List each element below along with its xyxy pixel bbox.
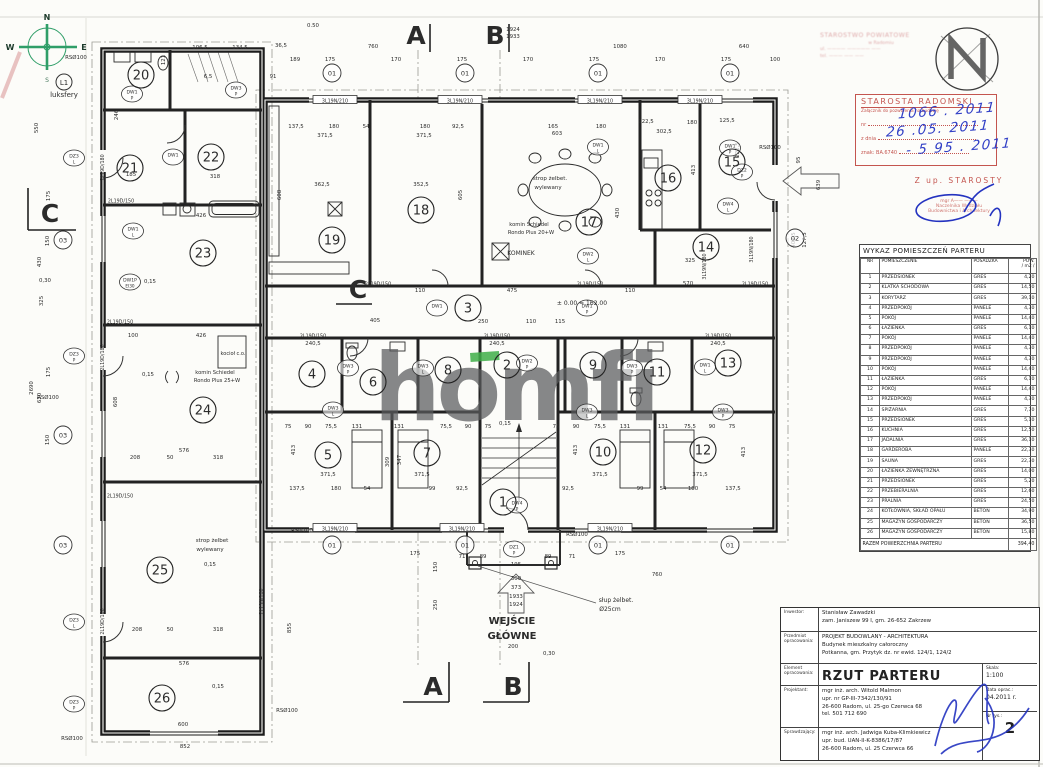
plan-annotation: kocioł c.o. bbox=[221, 351, 246, 357]
room-number: 3 bbox=[464, 302, 472, 317]
schedule-cell: PANELE bbox=[972, 386, 1009, 396]
schedule-row: 22PRZEBIERALNIAGRES12,60 bbox=[861, 487, 1037, 497]
schedule-row: 8PRZEDPOKÓJPANELE4,30 bbox=[861, 345, 1037, 355]
schedule-cell: 4,30 bbox=[1009, 304, 1037, 314]
plan-annotation: GŁÓWNE bbox=[487, 629, 536, 642]
schedule-cell: GRES bbox=[972, 457, 1009, 467]
dimension-label: 371,5 bbox=[320, 472, 335, 478]
schedule-cell: GRES bbox=[972, 324, 1009, 334]
dimension-label: 1933 bbox=[506, 34, 520, 40]
schedule-cell: GRES bbox=[972, 294, 1009, 304]
schedule-row: 12POKÓJPANELE14,40 bbox=[861, 386, 1037, 396]
dimension-label: 600 bbox=[178, 722, 189, 728]
dimension-label: 371,5 bbox=[592, 472, 607, 478]
schedule-cell: 36,10 bbox=[1009, 437, 1037, 447]
schedule-cell: GRES bbox=[972, 437, 1009, 447]
plan-annotation: ± 0.00 = 162.00 bbox=[557, 300, 607, 307]
schedule-cell: GARDEROBA bbox=[880, 447, 972, 457]
room-number: 19 bbox=[324, 234, 341, 249]
luksfery-tag: L1 bbox=[56, 74, 72, 90]
schedule-row: 20ŁAZIENKA ZEWNĘTRZNAGRES14,00 bbox=[861, 467, 1037, 477]
dimension-label: 175 bbox=[46, 367, 52, 377]
schedule-cell: GRES bbox=[972, 426, 1009, 436]
dimension-label: 137,5 bbox=[725, 486, 740, 492]
schedule-row: 14SPIŻARNIAGRES7,70 bbox=[861, 406, 1037, 416]
dimension-label: 640 bbox=[739, 44, 750, 50]
plan-annotation: Rondo Plus 25+W bbox=[194, 378, 240, 384]
schedule-cell: 19 bbox=[861, 457, 880, 467]
room-number: 12 bbox=[695, 444, 712, 459]
schedule-row: 17JADALNIAGRES36,10 bbox=[861, 437, 1037, 447]
schedule-cell: PRZEDSIONEK bbox=[880, 274, 972, 284]
dimension-label: 760 bbox=[368, 44, 379, 50]
dimension-label: 1080 bbox=[613, 44, 627, 50]
dimension-label: 75,5 bbox=[594, 424, 606, 430]
schedule-row: 26MAGAZYN GOSPODARCZYBETON15,80 bbox=[861, 528, 1037, 538]
schedule-cell: KLATKA SCHODOWA bbox=[880, 284, 972, 294]
room-number: 22 bbox=[203, 151, 220, 166]
dimension-label: 576 bbox=[179, 448, 190, 454]
compass-s: S bbox=[45, 77, 49, 84]
lintel-label: 3L19N/210 bbox=[322, 527, 348, 533]
dimension-label: 0,15 bbox=[142, 372, 154, 378]
scan-artifact bbox=[2, 52, 20, 98]
lintel-label: 2L19D/180 bbox=[100, 344, 106, 370]
dimension-label: 131 bbox=[352, 424, 362, 430]
room-number: 9 bbox=[589, 359, 597, 374]
plan-annotation: strop żelbet. bbox=[533, 176, 568, 182]
schedule-row: 5POKÓJPANELE14,40 bbox=[861, 314, 1037, 324]
schedule-cell: PANELE bbox=[972, 396, 1009, 406]
schedule-cell: 14,40 bbox=[1009, 386, 1037, 396]
room-schedule-table: WYKAZ POMIESZCZEŃ PARTERU NR POMIESZCZEN… bbox=[859, 244, 1031, 552]
dimension-label: 134,5 bbox=[232, 45, 247, 51]
dimension-label: 90 bbox=[465, 424, 472, 430]
room-schedule-header: NR POMIESZCZENIE POSADZKA POW. / m2 / bbox=[861, 259, 1037, 274]
dimension-label: 99 bbox=[429, 486, 436, 492]
schedule-cell: PANELE bbox=[972, 304, 1009, 314]
schedule-cell: 1 bbox=[861, 274, 880, 284]
dimension-label: 175 bbox=[457, 57, 467, 63]
schedule-cell: 8 bbox=[861, 345, 880, 355]
plan-annotation: KOMINEK bbox=[507, 250, 536, 257]
dimension-label: 100 bbox=[770, 57, 781, 63]
schedule-cell: PANELE bbox=[972, 365, 1009, 375]
schedule-cell: 20 bbox=[861, 467, 880, 477]
architect-chamber-logo bbox=[936, 28, 998, 90]
schedule-cell: 22,30 bbox=[1009, 457, 1037, 467]
opening-marker-label: 01 bbox=[328, 69, 336, 77]
schedule-cell: PRZEDPOKÓJ bbox=[880, 396, 972, 406]
dimension-label: 430 bbox=[37, 256, 43, 267]
schedule-cell: GRES bbox=[972, 284, 1009, 294]
schedule-row: 7POKÓJPANELE14,40 bbox=[861, 335, 1037, 345]
schedule-row: 13PRZEDPOKÓJPANELE4,30 bbox=[861, 396, 1037, 406]
section-marker: C bbox=[41, 199, 59, 228]
schedule-row: 11ŁAZIENKAGRES6,10 bbox=[861, 375, 1037, 385]
schedule-row: 19SAUNAGRES22,30 bbox=[861, 457, 1037, 467]
dimension-label: 180 bbox=[331, 486, 342, 492]
przedmiot-label: Przedmiot opracowania: bbox=[781, 632, 819, 664]
plan-annotation: wylewany bbox=[196, 547, 224, 553]
schedule-cell: 5 bbox=[861, 314, 880, 324]
dimension-label: 75 bbox=[729, 424, 736, 430]
room-number: 10 bbox=[595, 446, 612, 461]
dimension-label: 170 bbox=[523, 57, 534, 63]
dimension-label: 115 bbox=[555, 319, 565, 325]
room-number: 23 bbox=[195, 247, 212, 262]
inwestor-label: Inwestor: bbox=[781, 608, 819, 632]
rs-pipe-label: RSØ100 bbox=[566, 531, 588, 538]
schedule-total-row: RAZEM POWIERZCHNIA PARTERU 394,40 bbox=[861, 538, 1037, 550]
scale-value: 1:100 bbox=[986, 672, 1034, 679]
dimension-label: 89 bbox=[480, 554, 487, 560]
dimension-label: 180 bbox=[420, 124, 431, 130]
schedule-row: 18GARDEROBAPANELE22,30 bbox=[861, 447, 1037, 457]
dimension-label: 576 bbox=[179, 661, 190, 667]
schedule-cell: 14,00 bbox=[1009, 467, 1037, 477]
schedule-cell: JADALNIA bbox=[880, 437, 972, 447]
dimension-label: 373 bbox=[511, 585, 521, 591]
sprawdzajacy-value: mgr inż. arch. Jadwiga Kuba-Klimkiewiczu… bbox=[819, 728, 983, 760]
schedule-cell: 15 bbox=[861, 416, 880, 426]
dimension-label: 175 bbox=[721, 57, 731, 63]
faint-office-stamp: STAROSTWO POWIATOWE w Radomiu ul. ———— —… bbox=[820, 32, 942, 59]
dimension-label: 99 bbox=[637, 486, 644, 492]
dimension-label: 430 bbox=[615, 207, 621, 218]
schedule-cell: GRES bbox=[972, 406, 1009, 416]
schedule-cell: GRES bbox=[972, 487, 1009, 497]
schedule-cell: 21 bbox=[861, 477, 880, 487]
schedule-cell: PRZEBIERALNIA bbox=[880, 487, 972, 497]
projektant-value: mgr inż. arch. Witold Malmonupr. nr GP-I… bbox=[819, 686, 983, 728]
dimension-label: 413 bbox=[573, 445, 579, 455]
approval-stamp: STAROSTA RADOMSKI Załącznik do pozwoleni… bbox=[855, 94, 997, 166]
dimension-label: 760 bbox=[652, 572, 663, 578]
schedule-row: 25MAGAZYN GOSPODARCZYBETON36,50 bbox=[861, 518, 1037, 528]
dimension-label: 90 bbox=[573, 424, 580, 430]
room-number: 13 bbox=[720, 357, 737, 372]
opening-marker-label: 01 bbox=[461, 69, 469, 77]
dimension-label: 175 bbox=[615, 551, 625, 557]
schedule-cell: PRALNIA bbox=[880, 498, 972, 508]
schedule-cell: SPIŻARNIA bbox=[880, 406, 972, 416]
col-nr: NR bbox=[861, 259, 880, 274]
dimension-label: 570 bbox=[683, 281, 694, 287]
dimension-label: 71 bbox=[569, 554, 576, 560]
dimension-label: 122,5 bbox=[638, 119, 653, 125]
compass-e: E bbox=[81, 43, 86, 52]
schedule-cell: PRZEDSIONEK bbox=[880, 477, 972, 487]
opening-marker-label: 03 bbox=[59, 236, 67, 244]
dimension-label: 550 bbox=[34, 122, 40, 133]
dimension-label: 90 bbox=[709, 424, 716, 430]
dimension-label: 170 bbox=[391, 57, 402, 63]
schedule-cell: ŁAZIENKA bbox=[880, 324, 972, 334]
schedule-row: 15PRZEDSIONEKGRES5,10 bbox=[861, 416, 1037, 426]
rs-pipe-label: RSØ100 bbox=[61, 735, 83, 742]
plan-annotation: luksfery bbox=[50, 91, 78, 99]
dimension-label: 639 bbox=[816, 179, 822, 190]
dimension-label: 240,5 bbox=[710, 341, 725, 347]
schedule-cell: BETON bbox=[972, 518, 1009, 528]
schedule-cell: SAUNA bbox=[880, 457, 972, 467]
schedule-cell: GRES bbox=[972, 375, 1009, 385]
schedule-cell: 7,70 bbox=[1009, 406, 1037, 416]
element-label: Element opracowania: bbox=[781, 664, 819, 686]
schedule-cell: 12,50 bbox=[1009, 426, 1037, 436]
door-tag-code: DW1 bbox=[167, 153, 178, 159]
dimension-label: 318 bbox=[210, 174, 221, 180]
dimension-label: 608 bbox=[113, 396, 119, 407]
schedule-row: 6ŁAZIENKAGRES6,10 bbox=[861, 324, 1037, 334]
door-tag-side: EI30 bbox=[125, 284, 135, 289]
schedule-cell: 17 bbox=[861, 437, 880, 447]
dimension-label: 309 bbox=[385, 456, 391, 467]
schedule-row: 3KORYTARZGRES39,10 bbox=[861, 294, 1037, 304]
room-number: 14 bbox=[698, 241, 715, 256]
dimension-label: 208 bbox=[132, 627, 143, 633]
schedule-cell: PANELE bbox=[972, 447, 1009, 457]
dimension-label: 852 bbox=[180, 744, 190, 750]
scale-cell: Skala: 1:100 bbox=[983, 664, 1037, 686]
lintel-label: 2L19D/150 bbox=[577, 282, 603, 288]
schedule-cell: 22,30 bbox=[1009, 447, 1037, 457]
opening-marker-label: 01 bbox=[726, 541, 734, 549]
dimension-label: 475 bbox=[507, 288, 517, 294]
dimension-label: 405 bbox=[370, 318, 380, 324]
lintel-label: 3L19N/210 bbox=[447, 99, 473, 105]
opening-marker-label: 03 bbox=[59, 431, 67, 439]
schedule-cell: 4,30 bbox=[1009, 345, 1037, 355]
schedule-cell: 5,20 bbox=[1009, 477, 1037, 487]
schedule-row: 23PRALNIAGRES24,50 bbox=[861, 498, 1037, 508]
schedule-cell: 23 bbox=[861, 498, 880, 508]
dimension-label: 362,5 bbox=[314, 182, 329, 188]
dimension-label: 195 bbox=[511, 562, 521, 568]
compass-w: W bbox=[6, 43, 15, 52]
room-number: 20 bbox=[133, 69, 150, 84]
schedule-cell: 2 bbox=[861, 284, 880, 294]
schedule-cell: GRES bbox=[972, 467, 1009, 477]
dimension-label: 426 bbox=[196, 213, 207, 219]
schedule-cell: PRZEDPOKÓJ bbox=[880, 355, 972, 365]
dimension-label: 605 bbox=[458, 190, 464, 200]
schedule-total-label: RAZEM POWIERZCHNIA PARTERU bbox=[861, 538, 1009, 550]
schedule-cell: 11 bbox=[861, 375, 880, 385]
dimension-label: 371,5 bbox=[317, 133, 332, 139]
dimension-label: 0,15 bbox=[212, 684, 224, 690]
schedule-cell: 4,20 bbox=[1009, 274, 1037, 284]
schedule-cell: GRES bbox=[972, 477, 1009, 487]
dimension-label: 347 bbox=[397, 455, 403, 465]
dimension-label: 125,5 bbox=[719, 118, 734, 124]
room-number: 15 bbox=[724, 156, 741, 171]
dimension-label: 121 bbox=[161, 55, 167, 65]
dimension-label: 180 bbox=[596, 124, 607, 130]
schedule-cell: 9 bbox=[861, 355, 880, 365]
dimension-label: 165 bbox=[548, 124, 558, 130]
section-marker: A bbox=[406, 21, 426, 50]
dimension-label: 54 bbox=[660, 486, 667, 492]
opening-marker-label: 01 bbox=[594, 541, 602, 549]
schedule-cell: PRZEDSIONEK bbox=[880, 416, 972, 426]
schedule-cell: MAGAZYN GOSPODARCZY bbox=[880, 528, 972, 538]
drawing-title: RZUT PARTERU bbox=[819, 664, 983, 686]
dimension-label: 106,5 bbox=[192, 45, 207, 51]
lintel-label: 2L19D/150 bbox=[107, 320, 133, 326]
schedule-cell: KOTŁOWNIA, SKŁAD OPAŁU bbox=[880, 508, 972, 518]
dimension-label: 100 bbox=[128, 333, 139, 339]
lintel-label: 3L19N/180 bbox=[702, 253, 708, 279]
dimension-label: 246 bbox=[114, 109, 120, 120]
room-number: 8 bbox=[444, 364, 452, 379]
dimension-label: 318 bbox=[213, 455, 224, 461]
schedule-cell: PRZEDPOKÓJ bbox=[880, 345, 972, 355]
dimension-label: 110 bbox=[415, 288, 426, 294]
dimension-label: 170 bbox=[655, 57, 666, 63]
col-name: POMIESZCZENIE bbox=[880, 259, 972, 274]
schedule-cell: 14,40 bbox=[1009, 335, 1037, 345]
schedule-cell: PANELE bbox=[972, 355, 1009, 365]
section-marker: B bbox=[503, 672, 522, 701]
schedule-row: 9PRZEDPOKÓJPANELE4,30 bbox=[861, 355, 1037, 365]
schedule-cell: ŁAZIENKA ZEWNĘTRZNA bbox=[880, 467, 972, 477]
schedule-cell: KUCHNIA bbox=[880, 426, 972, 436]
lintel-label: 2L19D/150 bbox=[107, 494, 133, 500]
schedule-cell: 26 bbox=[861, 528, 880, 538]
schedule-cell: 14 bbox=[861, 406, 880, 416]
dimension-label: 855 bbox=[287, 623, 293, 633]
dimension-label: 131 bbox=[394, 424, 404, 430]
lintel-label: 2L19D/150 bbox=[108, 199, 134, 205]
dimension-label: 175 bbox=[325, 57, 335, 63]
dimension-label: 208 bbox=[130, 455, 141, 461]
authority-signature-stamp: Z up. STAROSTY mgr A—— ——— Naczelnika Wy… bbox=[884, 176, 1034, 214]
lintel-label: 2L19D/150 bbox=[705, 334, 731, 340]
lintel-label: 3L19N/210 bbox=[449, 527, 475, 533]
rs-pipe-label: RSØ100 bbox=[276, 707, 298, 714]
opening-marker-label: 01 bbox=[328, 541, 336, 549]
room-number: 17 bbox=[581, 216, 598, 231]
schedule-cell: 36,50 bbox=[1009, 518, 1037, 528]
dimension-label: 189 bbox=[290, 57, 301, 63]
schedule-cell: 10 bbox=[861, 365, 880, 375]
room-number: 5 bbox=[324, 449, 332, 464]
schedule-cell: 24 bbox=[861, 508, 880, 518]
room-number: 16 bbox=[660, 172, 677, 187]
dimension-label: 54 bbox=[363, 124, 370, 130]
dimension-label: 300 bbox=[511, 576, 522, 582]
plan-annotation: słup żelbet. bbox=[599, 597, 634, 604]
schedule-cell: 4 bbox=[861, 304, 880, 314]
schedule-row: 4PRZEDPOKÓJPANELE4,30 bbox=[861, 304, 1037, 314]
dimension-label: 75,5 bbox=[325, 424, 337, 430]
schedule-cell: POKÓJ bbox=[880, 386, 972, 396]
section-marker: C bbox=[349, 275, 367, 304]
schedule-cell: 18 bbox=[861, 447, 880, 457]
dimension-label: 6,5 bbox=[204, 74, 213, 80]
room-number: 18 bbox=[413, 204, 430, 219]
dimension-label: 0,30 bbox=[39, 278, 52, 284]
dimension-label: 1933 bbox=[509, 594, 523, 600]
schedule-cell: 14,40 bbox=[1009, 365, 1037, 375]
room-number: 21 bbox=[122, 162, 139, 177]
schedule-cell: 6,10 bbox=[1009, 375, 1037, 385]
date-value: 04.2011 r. bbox=[986, 694, 1034, 701]
col-area: POW. / m2 / bbox=[1009, 259, 1037, 274]
dimension-label: 75 bbox=[285, 424, 292, 430]
schedule-row: 16KUCHNIAGRES12,50 bbox=[861, 426, 1037, 436]
room-number: 7 bbox=[423, 447, 431, 462]
lintel-label: 2L19N/180 bbox=[259, 588, 265, 614]
dimension-label: 0.50 bbox=[307, 23, 320, 29]
door-tag-code: DW1 bbox=[431, 304, 442, 310]
dimension-label: 50 bbox=[167, 627, 174, 633]
opening-marker-label: 02 bbox=[791, 234, 799, 242]
dimension-label: 92,5 bbox=[456, 486, 468, 492]
dimension-label: 371,5 bbox=[692, 472, 707, 478]
schedule-cell: 14,40 bbox=[1009, 314, 1037, 324]
dimension-label: 50 bbox=[167, 455, 174, 461]
schedule-cell: GRES bbox=[972, 498, 1009, 508]
schedule-cell: PRZEDPOKÓJ bbox=[880, 304, 972, 314]
title-block: Inwestor: Stanisław Zawadzkizam. Janisze… bbox=[780, 607, 1040, 761]
rs-pipe-label: RSØ100 bbox=[759, 144, 781, 151]
dimension-label: 71 bbox=[459, 554, 466, 560]
plan-annotation: WEJŚCIE bbox=[489, 614, 536, 627]
lintel-label: 2L19D/150 bbox=[484, 334, 510, 340]
dimension-label: 0,30 bbox=[543, 651, 556, 657]
schedule-cell: 16 bbox=[861, 426, 880, 436]
dimension-label: 0,15 bbox=[204, 562, 216, 568]
dimension-label: 302,5 bbox=[656, 129, 671, 135]
schedule-cell: 15,80 bbox=[1009, 528, 1037, 538]
plan-annotation: strop żelbet bbox=[196, 538, 229, 544]
dimension-label: 89 bbox=[545, 554, 552, 560]
drawing-number: 2 bbox=[986, 719, 1034, 737]
schedule-cell: 34,90 bbox=[1009, 508, 1037, 518]
schedule-cell: BETON bbox=[972, 508, 1009, 518]
dimension-label: 318 bbox=[213, 627, 224, 633]
dimension-label: 110 bbox=[526, 319, 537, 325]
schedule-cell: MAGAZYN GOSPODARCZY bbox=[880, 518, 972, 528]
dimension-label: 75 bbox=[485, 424, 492, 430]
lintel-label: 2L19D/150 bbox=[300, 334, 326, 340]
dimension-label: 90 bbox=[305, 424, 312, 430]
dimension-label: 325 bbox=[685, 258, 695, 264]
dimension-label: 180 bbox=[688, 486, 699, 492]
przedmiot-value: PROJEKT BUDOWLANY - ARCHITEKTURABudynek … bbox=[819, 632, 1037, 664]
compass-rose: N W E S bbox=[6, 13, 87, 84]
dimension-label: 240,5 bbox=[305, 341, 320, 347]
schedule-cell: 3 bbox=[861, 294, 880, 304]
schedule-row: 24KOTŁOWNIA, SKŁAD OPAŁUBETON34,90 bbox=[861, 508, 1037, 518]
dimension-label: 240,5 bbox=[489, 341, 504, 347]
room-number: 24 bbox=[195, 404, 212, 419]
dimension-label: 92,5 bbox=[452, 124, 464, 130]
schedule-cell: GRES bbox=[972, 416, 1009, 426]
schedule-cell: 12 bbox=[861, 386, 880, 396]
lintel-label: 3L19N/210 bbox=[597, 527, 623, 533]
dimension-label: 175 bbox=[589, 57, 599, 63]
dimension-label: 0,15 bbox=[144, 279, 156, 285]
dimension-label: 603 bbox=[552, 131, 562, 137]
room-number: 26 bbox=[154, 692, 171, 707]
lintel-label: 3L19N/210 bbox=[322, 99, 348, 105]
room-number: 2 bbox=[503, 359, 511, 374]
schedule-cell: 6,10 bbox=[1009, 324, 1037, 334]
